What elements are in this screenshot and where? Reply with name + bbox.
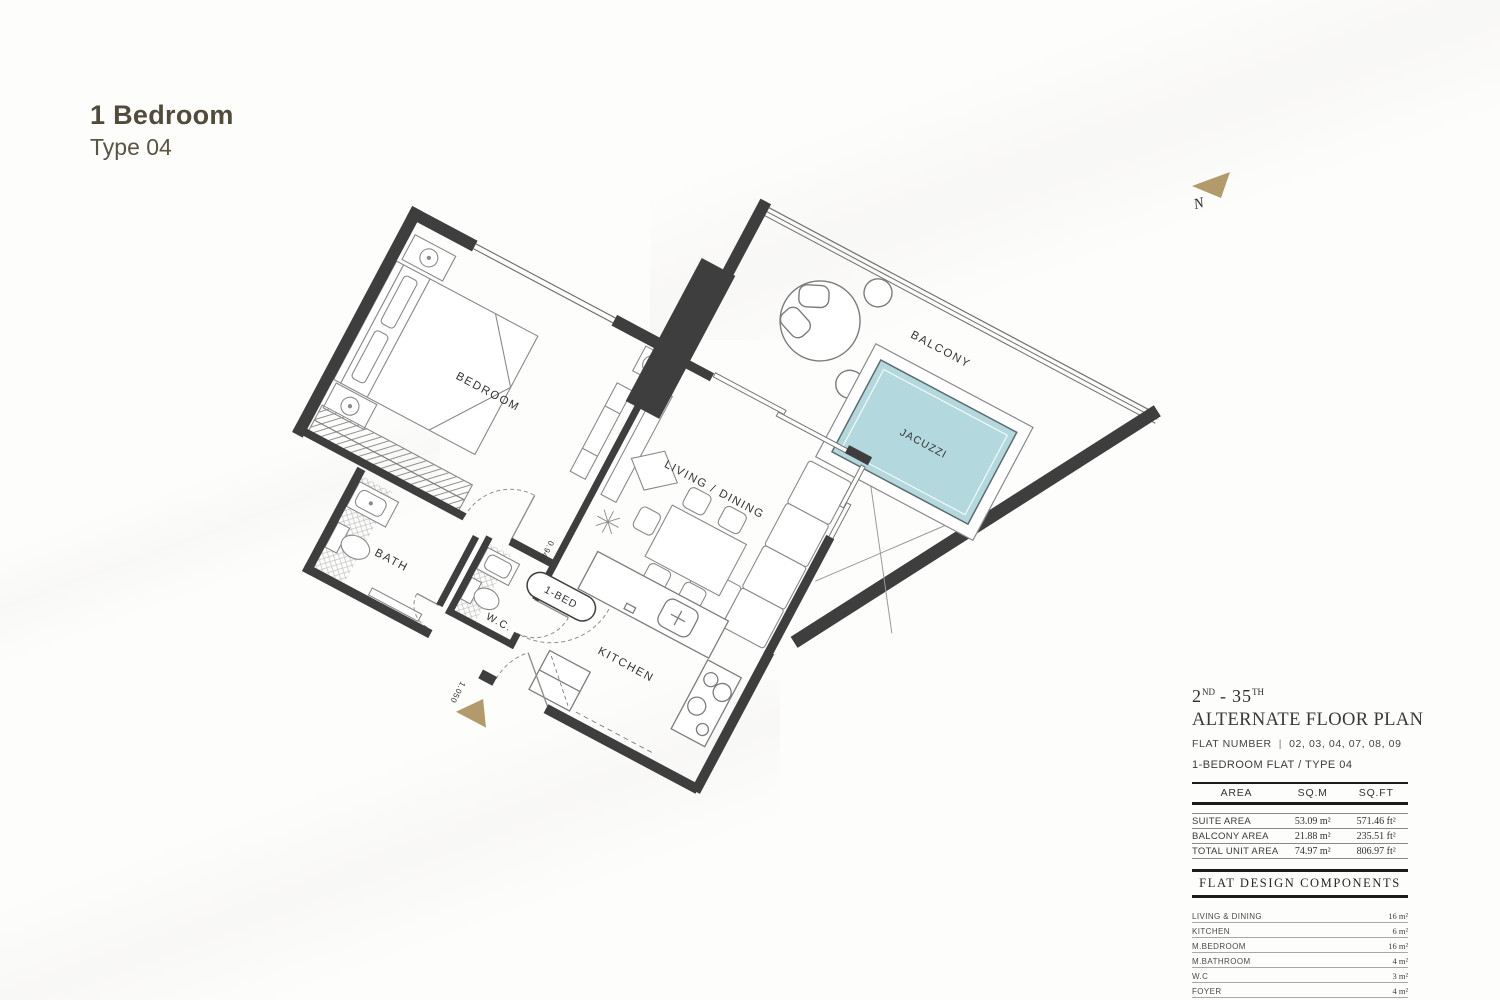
table-row: TOTAL UNIT AREA 74.97 m² 806.97 ft² (1192, 844, 1408, 859)
bath-label: BATH (372, 547, 410, 575)
floor-start: 2 (1192, 686, 1202, 706)
components-title: FLAT DESIGN COMPONENTS (1192, 869, 1408, 898)
kitchen-label: KITCHEN (596, 645, 656, 685)
component-row: W.C 3 m² (1192, 968, 1408, 983)
flat-type: 1-BEDROOM FLAT / TYPE 04 (1192, 759, 1408, 771)
table-row: BALCONY AREA 21.88 m² 235.51 ft² (1192, 829, 1408, 844)
window-lines (473, 244, 615, 323)
flat-numbers: 02, 03, 04, 07, 08, 09 (1289, 738, 1401, 750)
entrance-arrow-icon (456, 691, 497, 728)
area-table-header: AREA SQ.M SQ.FT (1192, 782, 1408, 805)
table-row: SUITE AREA 53.09 m² 571.46 ft² (1192, 814, 1408, 829)
area-table: AREA SQ.M SQ.FT SUITE AREA 53.09 m² 571.… (1192, 782, 1408, 859)
flat-number-line: FLAT NUMBER|02, 03, 04, 07, 08, 09 (1192, 738, 1408, 750)
page: 1 Bedroom Type 04 N (0, 0, 1500, 1000)
plan-subtitle: ALTERNATE FLOOR PLAN (1192, 710, 1408, 731)
floor-range: 2ND-35TH (1192, 686, 1408, 707)
component-row: LIVING & DINING 16 m² (1192, 908, 1408, 923)
plant-icon (592, 506, 624, 538)
component-row: M.BATHROOM 4 m² (1192, 953, 1408, 968)
balcony-label: BALCONY (909, 329, 973, 371)
info-panel: 2ND-35TH ALTERNATE FLOOR PLAN FLAT NUMBE… (1192, 686, 1408, 998)
components-table: LIVING & DINING 16 m² KITCHEN 6 m² M.BED… (1192, 908, 1408, 998)
dimension-entrance: 1.050 (448, 680, 467, 705)
component-row: KITCHEN 6 m² (1192, 923, 1408, 938)
component-row: FOYER 4 m² (1192, 983, 1408, 998)
component-row: M.BEDROOM 16 m² (1192, 938, 1408, 953)
flat-number-label: FLAT NUMBER (1192, 738, 1272, 750)
floor-end: 35 (1232, 686, 1252, 706)
